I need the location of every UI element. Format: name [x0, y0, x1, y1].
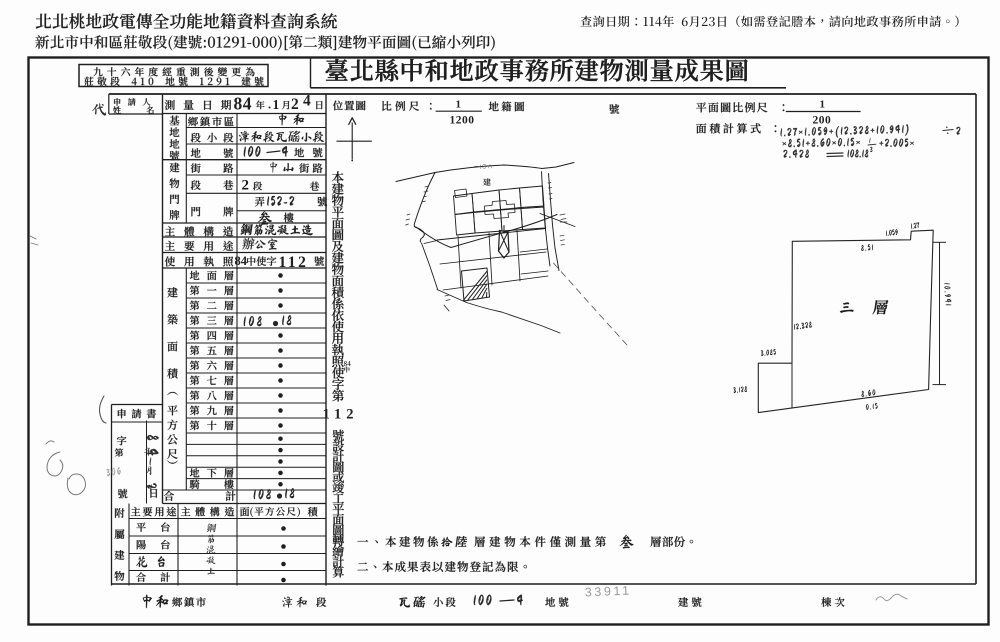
svg-text:112: 112	[323, 407, 359, 423]
svg-text:2: 2	[291, 96, 299, 113]
svg-text:200: 200	[813, 115, 832, 127]
svg-text:一 | 〇 八: 一 | 〇 八	[474, 164, 493, 169]
svg-text:1200: 1200	[450, 115, 475, 127]
svg-text:33911: 33911	[585, 583, 632, 599]
svg-text:4: 4	[303, 93, 311, 110]
svg-text:1: 1	[456, 99, 462, 111]
svg-text:1: 1	[273, 97, 280, 112]
svg-text:1: 1	[820, 99, 826, 111]
svg-text:112: 112	[279, 254, 309, 271]
svg-text:2: 2	[242, 178, 250, 194]
svg-text:84: 84	[235, 254, 248, 268]
svg-text:84: 84	[234, 94, 253, 114]
